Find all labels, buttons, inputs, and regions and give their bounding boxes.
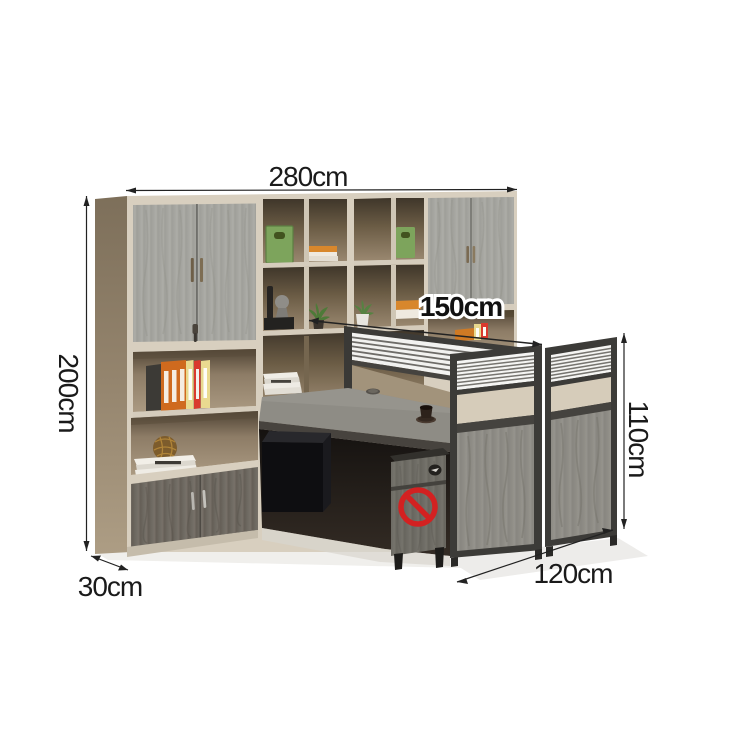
svg-text:280cm: 280cm [268, 161, 347, 192]
svg-text:150cm: 150cm [420, 291, 502, 322]
svg-text:110cm: 110cm [623, 401, 654, 478]
svg-text:120cm: 120cm [533, 558, 612, 589]
svg-text:30cm: 30cm [78, 571, 142, 602]
svg-text:200cm: 200cm [53, 353, 84, 432]
